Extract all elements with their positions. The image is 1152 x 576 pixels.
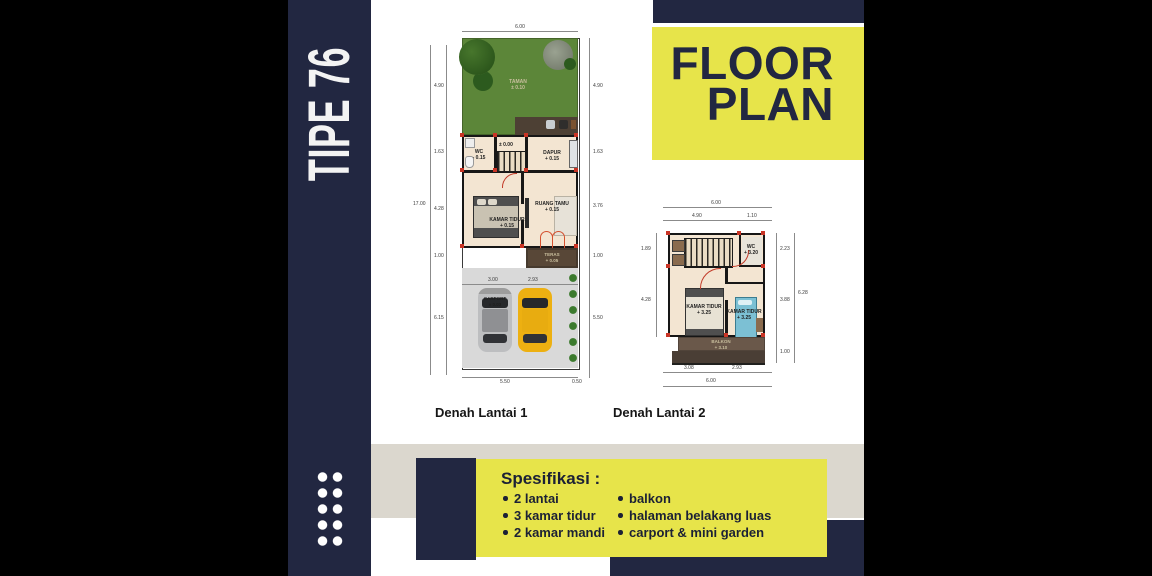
room-level: + 3.25 [682, 310, 726, 316]
wall-node [520, 244, 524, 248]
spec-list-right: balkonhalaman belakang luascarport & min… [618, 490, 771, 541]
wall [521, 172, 524, 204]
dim-label: 1.63 [593, 149, 603, 155]
wall-node [574, 244, 578, 248]
dim-label: 5.50 [593, 315, 603, 321]
room-label-kamar-tidur-2: KAMAR TIDUR + 3.25 [724, 309, 764, 321]
dim-label: 4.90 [692, 213, 702, 219]
dim-line [462, 31, 578, 32]
banner-title: TIPE 76 [300, 33, 360, 194]
dim-line [794, 233, 795, 363]
dim-line [589, 38, 590, 378]
dim-label: 4.90 [434, 83, 444, 89]
wall-node [524, 168, 528, 172]
wall [727, 282, 765, 284]
dim-label: 4.28 [641, 297, 651, 303]
dim-label: 1.63 [434, 149, 444, 155]
dim-line [663, 372, 772, 373]
dim-label: 3.00 [488, 277, 498, 283]
dim-line [462, 284, 578, 285]
header-title-line2: PLAN [652, 84, 834, 125]
balcony-lower [672, 351, 765, 365]
room-level: + 0.15 [483, 223, 531, 229]
car-roof [482, 309, 508, 332]
stove-icon [559, 120, 568, 129]
room-level: + 3.10 [706, 345, 736, 351]
header-title-box: FLOOR PLAN [652, 27, 864, 160]
room-label-wc2: WC + 3.20 [739, 244, 763, 256]
pillow [477, 199, 486, 205]
dim-label: 1.00 [593, 253, 603, 259]
spec-item: 2 kamar mandi [503, 524, 605, 541]
sink-icon [546, 120, 555, 129]
dim-line [462, 377, 578, 378]
room-label-taman: TAMAN ± 0.10 [492, 79, 544, 91]
counter-board [571, 120, 576, 129]
level-label-stairs: ± 0.00 [499, 142, 513, 148]
stairs [684, 238, 733, 268]
room-level: ± 0.03 [480, 302, 510, 308]
room-label-teras: TERAS + 0.05 [536, 252, 568, 264]
dim-line [663, 220, 772, 221]
pillow [488, 199, 497, 205]
header-navy-bar [653, 0, 864, 23]
plan2-caption: Denah Lantai 2 [613, 405, 703, 420]
dim-label: 6.28 [798, 290, 808, 296]
dim-label: 17.00 [413, 201, 426, 207]
pillow [738, 300, 752, 305]
dim-line [663, 207, 772, 208]
spec-heading: Spesifikasi : [501, 469, 600, 489]
car-yellow [518, 288, 552, 352]
left-banner: TIPE 76 [288, 0, 371, 576]
room-level: ± 0.10 [492, 85, 544, 91]
dim-line [776, 233, 777, 363]
storage-box [672, 254, 685, 266]
room-level: + 3.20 [739, 250, 763, 256]
wall-node [666, 333, 670, 337]
car-windshield [522, 298, 548, 308]
wall-node [666, 231, 670, 235]
room-level: + 0.15 [534, 156, 570, 162]
room-label-wc: WC - 0.15 [466, 149, 492, 161]
dim-label: 2.93 [528, 277, 538, 283]
wall-node [574, 133, 578, 137]
wall-node [666, 264, 670, 268]
dim-label: 6.00 [500, 24, 540, 30]
spec-accent-block [416, 458, 476, 560]
plan1-caption: Denah Lantai 1 [435, 405, 525, 420]
dim-label: 1.00 [780, 349, 790, 355]
dim-label: 1.89 [641, 246, 651, 252]
wall-node [460, 133, 464, 137]
tree-icon [459, 39, 495, 75]
wall-node [524, 133, 528, 137]
fridge-icon [569, 140, 578, 168]
room-label-kamar-tidur-1: KAMAR TIDUR + 3.25 [682, 304, 726, 316]
dim-line [430, 45, 431, 375]
car-roof [522, 309, 548, 332]
dim-label: 5.50 [500, 379, 510, 385]
dim-label: 4.28 [434, 206, 444, 212]
wall-node [761, 264, 765, 268]
dots-decoration [315, 469, 345, 549]
wall-node [460, 168, 464, 172]
tree-icon [564, 58, 576, 70]
room-label-kamar-tidur: KAMAR TIDUR + 0.15 [483, 217, 531, 229]
spec-list-left: 2 lantai3 kamar tidur2 kamar mandi [503, 490, 605, 541]
car-rear-window [483, 334, 507, 343]
dim-label: 0.50 [572, 379, 582, 385]
room-label-ruang-tamu: RUANG TAMU + 0.15 [532, 201, 572, 213]
room-level: + 3.25 [724, 315, 764, 321]
dim-label: 6.00 [706, 378, 716, 384]
dim-line [663, 386, 772, 387]
dim-label: 6.15 [434, 315, 444, 321]
design-area: FLOOR PLAN TAMAN ± 0.10 [288, 0, 864, 576]
spec-box: Spesifikasi : 2 lantai3 kamar tidur2 kam… [476, 459, 827, 557]
wall-node [724, 333, 728, 337]
dim-label: 1.10 [747, 213, 757, 219]
wall-node [574, 168, 578, 172]
dim-label: 1.00 [434, 253, 444, 259]
room-label-carport: CARPORT ± 0.03 [480, 296, 510, 308]
dim-label: 2.93 [732, 365, 742, 371]
room-level: + 0.15 [532, 207, 572, 213]
spec-item: halaman belakang luas [618, 507, 771, 524]
wall-node [737, 231, 741, 235]
dim-label: 6.00 [696, 200, 736, 206]
storage-box [672, 240, 685, 252]
dim-line [446, 45, 447, 375]
dim-label: 2.23 [780, 246, 790, 252]
dim-label: 3.08 [684, 365, 694, 371]
wall-node [761, 333, 765, 337]
wall-node [761, 231, 765, 235]
wall-node [460, 244, 464, 248]
room-label-balkon: BALKON + 3.10 [706, 339, 736, 351]
spec-item: carport & mini garden [618, 524, 771, 541]
car-rear-window [523, 334, 547, 343]
door-arc [552, 231, 565, 248]
wc-sink-icon [465, 138, 475, 148]
room-label-dapur: DAPUR + 0.15 [534, 150, 570, 162]
dim-label: 4.90 [593, 83, 603, 89]
spec-item: 2 lantai [503, 490, 605, 507]
spec-item: 3 kamar tidur [503, 507, 605, 524]
room-level: + 0.05 [536, 258, 568, 264]
wall [739, 265, 763, 267]
poster-canvas: FLOOR PLAN TAMAN ± 0.10 [0, 0, 1152, 576]
dim-label: 3.76 [593, 203, 603, 209]
dim-label: 3.88 [780, 297, 790, 303]
dim-line [656, 233, 657, 337]
wall-node [493, 168, 497, 172]
room-level: - 0.15 [466, 155, 492, 161]
wall-node [493, 133, 497, 137]
stairs [497, 151, 526, 172]
spec-item: balkon [618, 490, 771, 507]
